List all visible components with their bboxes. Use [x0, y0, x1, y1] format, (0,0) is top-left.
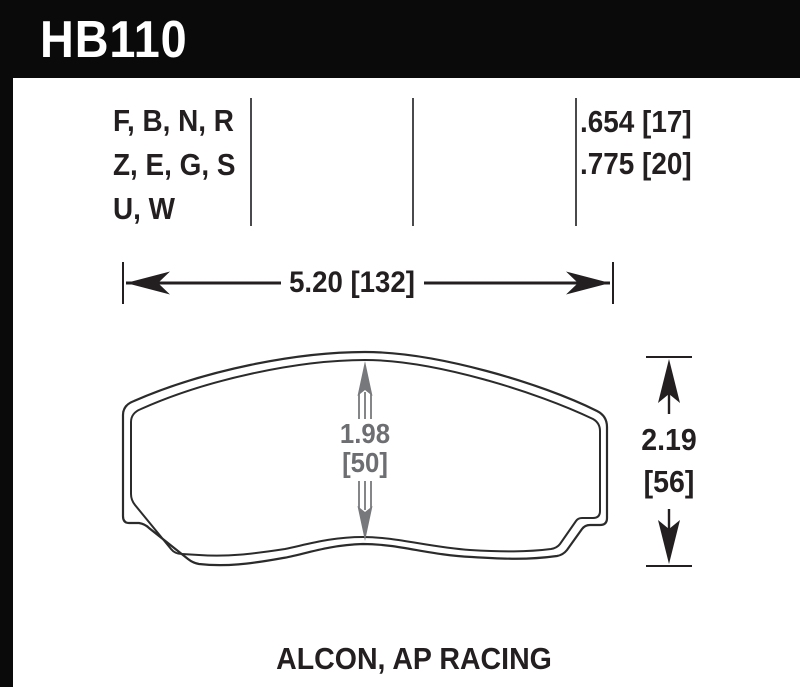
width-dimension-label: 5.20 [132] [260, 266, 444, 300]
part-number: HB110 [40, 10, 188, 70]
height-value-in: 2.19 [613, 419, 725, 461]
pad-thickness-values: .654 [17] .775 [20] [580, 101, 692, 185]
pad-depth-label: 1.98 [50] [310, 419, 420, 477]
compound-codes: F, B, N, R Z, E, G, S U, W [113, 99, 235, 231]
compound-line: F, B, N, R [113, 99, 235, 143]
compound-line: U, W [113, 187, 235, 231]
height-dimension-label: 2.19 [56] [613, 419, 725, 503]
thickness-line: .654 [17] [580, 101, 692, 143]
column-divider [412, 98, 414, 226]
thickness-line: .775 [20] [580, 143, 692, 185]
left-accent-bar [0, 0, 13, 687]
applications-label: ALCON, AP RACING [46, 641, 782, 677]
compound-line: Z, E, G, S [113, 143, 235, 187]
header-bar: HB110 [0, 0, 800, 78]
brake-pad-spec-sheet: HB110 F, B, N, R Z, E, G, S U, W .654 [1… [0, 0, 800, 691]
pad-depth-value-mm: [50] [310, 448, 420, 477]
pad-depth-value-in: 1.98 [310, 419, 420, 448]
column-divider [250, 98, 252, 226]
height-value-mm: [56] [613, 461, 725, 503]
column-divider [575, 98, 577, 226]
